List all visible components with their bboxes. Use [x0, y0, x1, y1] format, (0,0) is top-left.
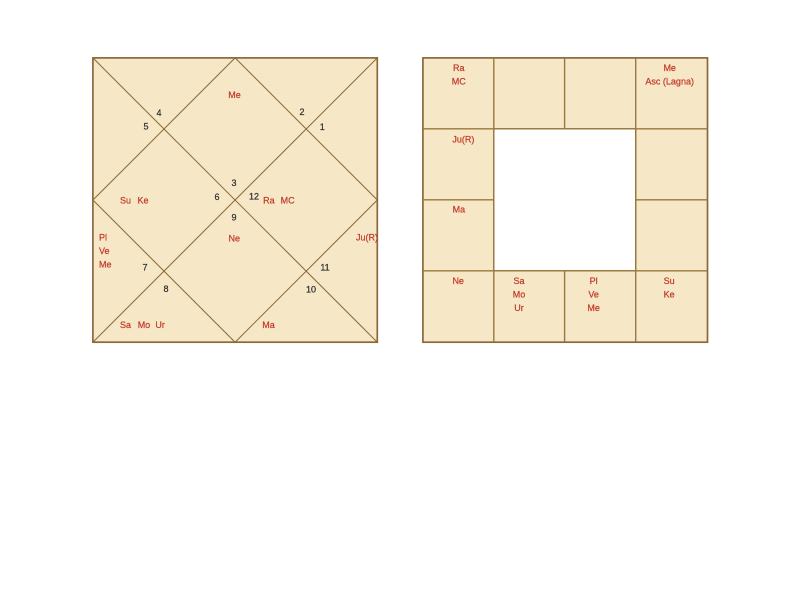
- svg-text:Me: Me: [99, 260, 112, 270]
- svg-text:Pl: Pl: [99, 233, 107, 243]
- svg-text:Ve: Ve: [99, 246, 110, 256]
- svg-text:Asc (Lagna): Asc (Lagna): [645, 77, 694, 87]
- svg-text:Ra: Ra: [263, 195, 275, 205]
- svg-text:7: 7: [142, 263, 147, 273]
- svg-text:6: 6: [214, 192, 219, 202]
- svg-text:MC: MC: [452, 77, 466, 87]
- svg-text:Me: Me: [228, 90, 241, 100]
- svg-text:Ju(R): Ju(R): [452, 135, 474, 145]
- svg-text:2: 2: [299, 107, 304, 117]
- svg-text:5: 5: [143, 121, 148, 131]
- svg-text:Ra: Ra: [453, 63, 465, 73]
- svg-text:9: 9: [231, 212, 236, 222]
- svg-text:Sa: Sa: [513, 276, 524, 286]
- svg-text:1: 1: [320, 122, 325, 132]
- svg-text:8: 8: [163, 284, 168, 294]
- svg-text:Pl: Pl: [590, 276, 598, 286]
- svg-text:4: 4: [156, 108, 161, 118]
- svg-text:Ur: Ur: [155, 320, 165, 330]
- svg-text:Ma: Ma: [453, 205, 466, 215]
- svg-text:Ve: Ve: [588, 290, 599, 300]
- svg-text:Ke: Ke: [664, 290, 675, 300]
- svg-text:Me: Me: [587, 303, 600, 313]
- svg-text:3: 3: [231, 178, 236, 188]
- svg-text:11: 11: [320, 262, 329, 272]
- svg-text:12: 12: [249, 192, 259, 202]
- svg-text:Ma: Ma: [262, 320, 275, 330]
- svg-text:Sa: Sa: [120, 320, 131, 330]
- svg-text:Ju(R): Ju(R): [356, 233, 378, 243]
- svg-text:Su: Su: [120, 195, 131, 205]
- svg-text:Su: Su: [664, 276, 675, 286]
- svg-text:Ne: Ne: [229, 234, 241, 244]
- svg-text:10: 10: [306, 284, 316, 294]
- svg-text:Mo: Mo: [513, 290, 526, 300]
- svg-text:Ke: Ke: [138, 195, 149, 205]
- svg-text:MC: MC: [281, 195, 295, 205]
- svg-text:Ur: Ur: [514, 303, 524, 313]
- svg-text:Me: Me: [663, 63, 676, 73]
- svg-text:Mo: Mo: [138, 320, 151, 330]
- svg-text:Ne: Ne: [452, 276, 464, 286]
